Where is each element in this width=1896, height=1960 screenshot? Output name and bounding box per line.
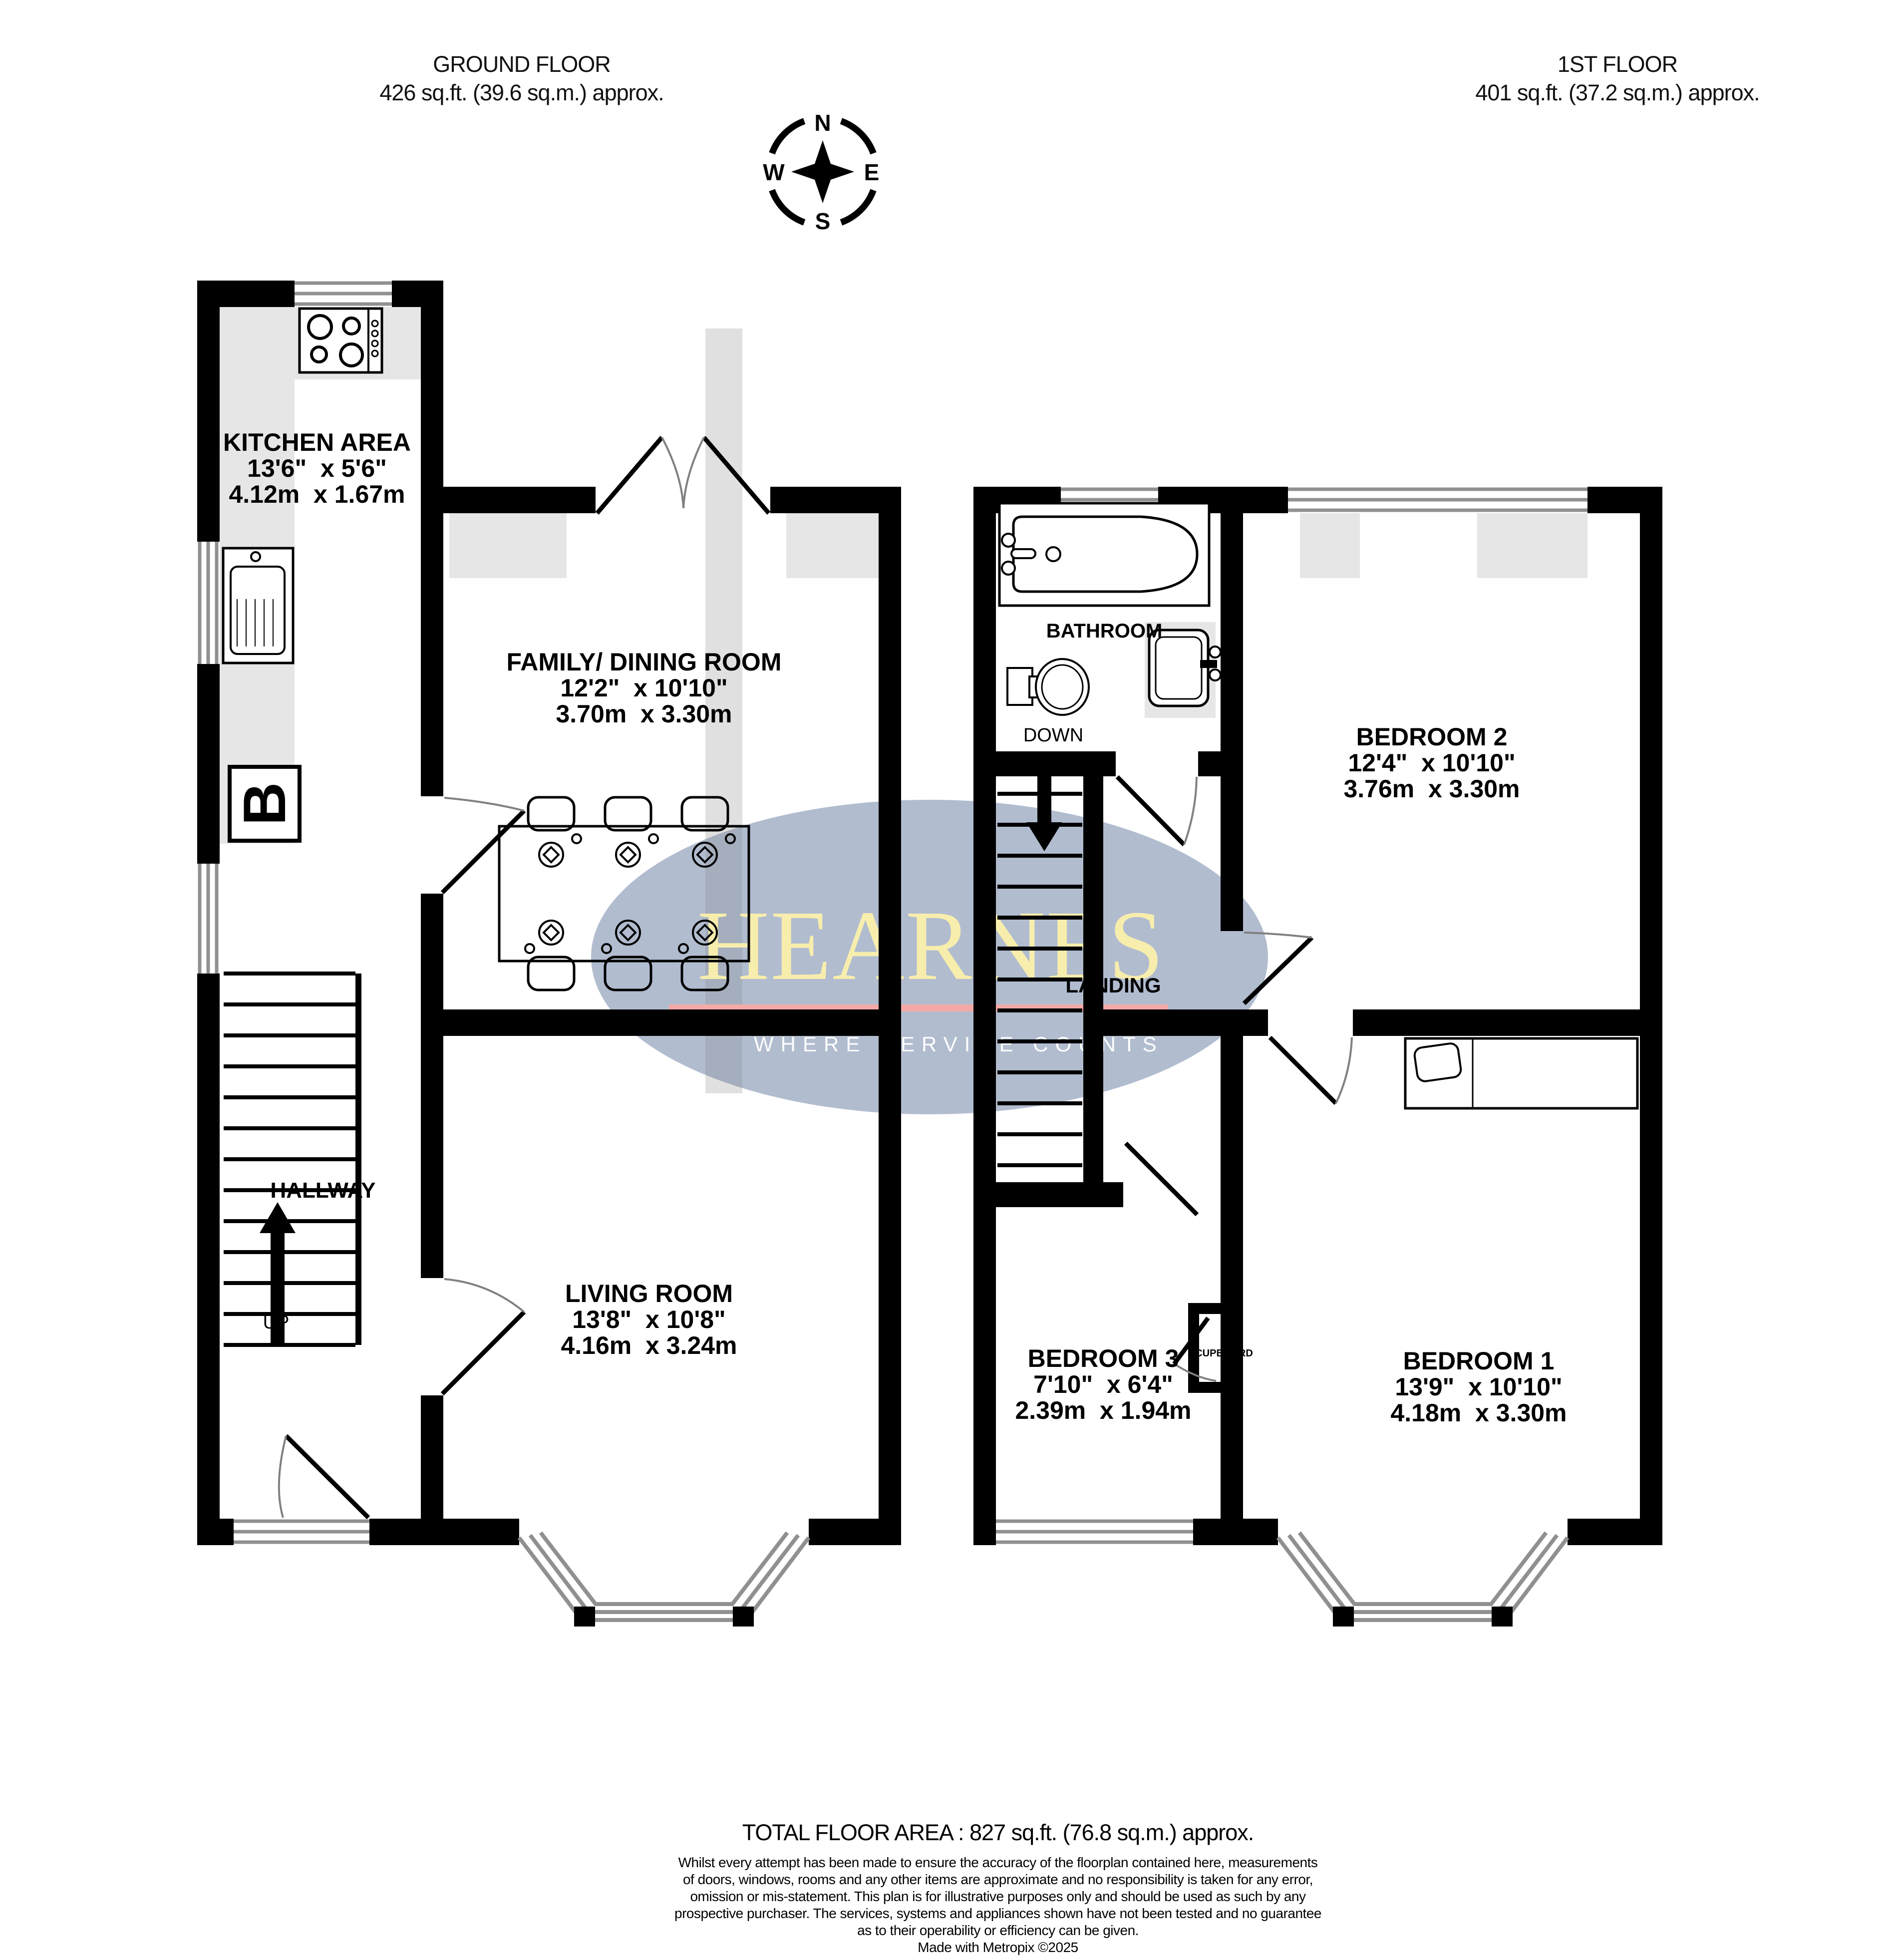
compass-north: N xyxy=(814,110,831,136)
compass-east: E xyxy=(864,159,880,185)
ground-floor-area: 426 sq.ft. (39.6 sq.m.) approx. xyxy=(347,78,696,107)
bay-window-living xyxy=(519,1533,809,1620)
room-label-family: FAMILY/ DINING ROOM 12'2" x 10'10" 3.70m… xyxy=(494,649,794,727)
floorplan-page: GROUND FLOOR 426 sq.ft. (39.6 sq.m.) app… xyxy=(0,0,1896,1960)
compass-rose-icon: N E S W xyxy=(748,97,898,247)
room-label-living: LIVING ROOM 13'8" x 10'8" 4.16m x 3.24m xyxy=(499,1281,799,1358)
ground-floor-title: GROUND FLOOR 426 sq.ft. (39.6 sq.m.) app… xyxy=(347,50,696,107)
room-label-bedroom2: BEDROOM 2 12'4" x 10'10" 3.76m x 3.30m xyxy=(1282,724,1581,802)
bay-window-bedroom1-corners xyxy=(1333,1607,1513,1627)
first-floor-area: 401 sq.ft. (37.2 sq.m.) approx. xyxy=(1443,78,1792,107)
stairs-up xyxy=(224,974,361,1345)
toilet-icon xyxy=(1007,659,1089,715)
first-floor-plan xyxy=(973,487,1662,1627)
disclaimer-line: as to their operability or efficiency ca… xyxy=(549,1922,1447,1939)
disclaimer-line: omission or mis-statement. This plan is … xyxy=(549,1888,1447,1905)
kitchen-sink-icon xyxy=(223,548,293,663)
ground-floor-name: GROUND FLOOR xyxy=(347,50,696,78)
boiler-label: B xyxy=(231,782,298,826)
room-label-bedroom1: BEDROOM 1 13'9" x 10'10" 4.18m x 3.30m xyxy=(1329,1348,1628,1426)
dining-table-icon xyxy=(499,797,749,990)
stove-hob-icon xyxy=(300,309,382,372)
bathtub-icon xyxy=(999,503,1209,606)
made-with-metropix: Made with Metropix ©2025 xyxy=(549,1939,1447,1956)
ground-shading xyxy=(220,307,879,844)
room-label-landing: LANDING xyxy=(1038,974,1188,997)
compass-west: W xyxy=(763,159,785,185)
stairs-up-label: UP xyxy=(226,1312,326,1333)
room-label-cupboard: CUPBOARD xyxy=(1184,1348,1264,1359)
bay-window-bedroom1 xyxy=(1278,1533,1568,1620)
first-floor-title: 1ST FLOOR 401 sq.ft. (37.2 sq.m.) approx… xyxy=(1443,50,1792,107)
compass-south: S xyxy=(815,208,831,234)
room-label-hallway: HALLWAY xyxy=(248,1178,398,1203)
first-floor-name: 1ST FLOOR xyxy=(1443,50,1792,78)
bay-window-living-corners xyxy=(574,1607,754,1627)
down-arrow-icon xyxy=(1026,771,1062,851)
single-bed-icon xyxy=(1405,1038,1637,1108)
disclaimer-line: Whilst every attempt has been made to en… xyxy=(549,1854,1447,1871)
room-label-bathroom: BATHROOM xyxy=(1029,620,1179,643)
disclaimer-line: prospective purchaser. The services, sys… xyxy=(549,1905,1447,1922)
compass-star xyxy=(791,140,854,203)
boiler-icon: B xyxy=(230,767,300,841)
room-label-kitchen: KITCHEN AREA 13'6" x 5'6" 4.12m x 1.67m xyxy=(192,429,442,507)
floorplan-drawing: B xyxy=(0,0,1896,1960)
stairs-down-label: DOWN xyxy=(1003,725,1103,746)
disclaimer-text: Whilst every attempt has been made to en… xyxy=(549,1854,1447,1956)
total-floor-area: TOTAL FLOOR AREA : 827 sq.ft. (76.8 sq.m… xyxy=(549,1820,1447,1846)
stairs-down xyxy=(997,771,1082,1165)
first-shading xyxy=(1145,513,1587,718)
disclaimer-line: of doors, windows, rooms and any other i… xyxy=(549,1871,1447,1888)
